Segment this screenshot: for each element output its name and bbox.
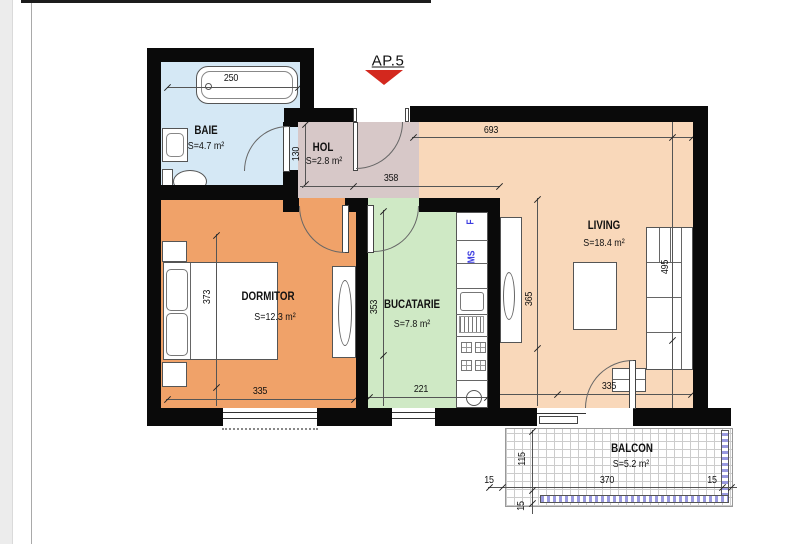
dim-line-365 (537, 198, 538, 406)
balcony-railing-right (721, 430, 729, 503)
entrance-jamb-right (405, 108, 409, 122)
dim-250: 250 (224, 72, 238, 84)
counter-divider (456, 336, 488, 337)
sofa-shelf-line (659, 228, 660, 262)
pillow-1 (166, 269, 188, 311)
page-margin-strip (0, 0, 13, 544)
dim-353: 353 (368, 300, 380, 314)
hob-burner (475, 360, 486, 371)
kitchen-sink (466, 390, 482, 406)
room-label-bucatarie: BUCATARIE (384, 299, 440, 311)
dish-rack (459, 316, 484, 333)
counter-divider (456, 314, 488, 315)
dim-335-dormitor: 335 (253, 385, 267, 397)
page-top-edge (21, 0, 431, 3)
kitchen-window (392, 408, 435, 426)
dim-130: 130 (290, 147, 302, 161)
wall-bottom-2 (317, 408, 392, 426)
sofa-cushion-line (647, 332, 681, 333)
bathtub-inner (201, 71, 293, 99)
room-label-hol: HOL (313, 142, 334, 154)
dining-table (573, 262, 617, 330)
oven (460, 292, 484, 311)
wall-bathroom-door-stub-bottom (283, 170, 298, 186)
wall-exterior-left (147, 48, 161, 426)
dim-15-right: 15 (707, 474, 716, 486)
balcony-railing-bottom (540, 495, 729, 503)
balcony-door-fixed-panel (539, 416, 578, 424)
wardrobe-handle (338, 280, 352, 346)
counter-divider (456, 288, 488, 289)
counter-divider (456, 380, 488, 381)
dim-373: 373 (201, 290, 213, 304)
bathroom-sink-basin (166, 133, 184, 157)
wall-hall-top (284, 108, 353, 122)
page-edge-line (31, 0, 32, 544)
dim-495: 495 (659, 260, 671, 274)
wall-dormitor-top-left (283, 198, 299, 212)
dim-line-250 (167, 87, 298, 88)
dim-221: 221 (414, 383, 428, 395)
wall-bottom-4 (633, 408, 731, 426)
dim-line-373 (216, 234, 217, 406)
wall-exterior-right (693, 107, 708, 410)
dim-15-left: 15 (484, 474, 493, 486)
wall-bottom-3 (435, 408, 537, 426)
dim-line-495 (672, 122, 673, 408)
dormitor-window (223, 408, 317, 426)
nightstand-bottom (162, 362, 187, 387)
wall-kitchen-right (488, 198, 500, 410)
dim-370: 370 (600, 474, 614, 486)
sofa-back-line (681, 228, 682, 369)
kitchen-door-leaf (367, 205, 374, 253)
floor-plan: AP.5 BAIE S=4.7 m² HOL S=2.8 m² DORMITOR… (0, 0, 800, 544)
sofa-shelf-line (670, 228, 671, 262)
room-label-living: LIVING (588, 220, 621, 232)
room-area-baie: S=4.7 m² (188, 140, 224, 152)
room-area-hol: S=2.8 m² (306, 155, 342, 167)
room-area-bucatarie: S=7.8 m² (394, 318, 430, 330)
apartment-label: AP.5 (372, 53, 405, 70)
counter-divider (456, 240, 488, 241)
pillow-2 (166, 313, 188, 356)
dim-335-living: 335 (602, 380, 616, 392)
dim-line-335-dormitor (166, 399, 355, 400)
room-area-balcon: S=5.2 m² (613, 458, 649, 470)
wall-bathroom-bottom (147, 185, 298, 200)
bed-head-line (190, 263, 191, 359)
dim-line-358 (300, 186, 500, 187)
nightstand-top (162, 241, 187, 262)
dim-line-693 (412, 137, 693, 138)
room-area-living: S=18.4 m² (583, 237, 624, 249)
apartment-marker-arrow (365, 70, 403, 85)
hob-burner (461, 360, 472, 371)
dim-358: 358 (384, 172, 398, 184)
room-area-dormitor: S=12.3 m² (254, 311, 295, 323)
dim-15-bottom: 15 (515, 501, 527, 510)
fridge-label: F (466, 219, 477, 224)
hob-burner (475, 342, 486, 353)
room-label-dormitor: DORMITOR (241, 291, 294, 303)
dim-115: 115 (516, 452, 528, 465)
sideboard-handle (503, 272, 515, 320)
dim-line-balcony-width (488, 487, 737, 488)
sofa-cushion-line (647, 297, 681, 298)
wall-bathroom-top (147, 48, 314, 62)
dim-693: 693 (484, 124, 498, 136)
washer-label: MS (467, 251, 478, 264)
dim-line-221 (368, 397, 488, 398)
wall-exterior-top (410, 106, 708, 122)
room-label-balcon: BALCON (611, 443, 653, 455)
dim-365: 365 (523, 292, 535, 306)
wall-bottom-1 (147, 408, 223, 426)
entrance-jamb-left (353, 108, 357, 122)
room-label-baie: BAIE (194, 125, 217, 137)
dormitor-window-sill (222, 426, 318, 430)
hob-burner (461, 342, 472, 353)
